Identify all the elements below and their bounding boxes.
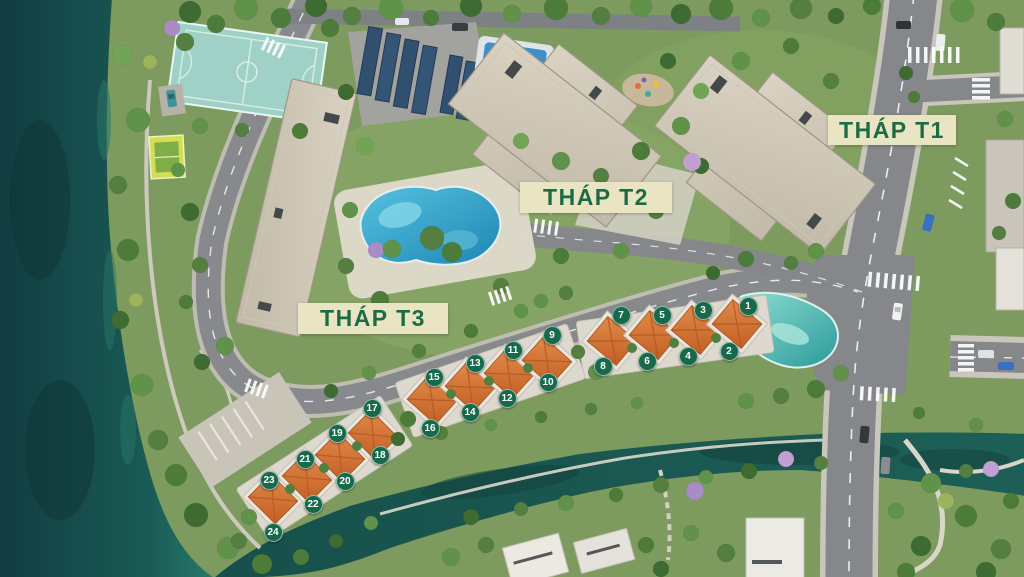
villa-marker-24: 24 xyxy=(264,523,283,542)
villa-marker-21: 21 xyxy=(296,450,315,469)
villa-marker-17: 17 xyxy=(363,399,382,418)
villa-marker-13: 13 xyxy=(466,354,485,373)
tower-label-t3: THÁP T3 xyxy=(298,303,448,334)
masterplan-render xyxy=(0,0,1024,577)
masterplan-image: THÁP T1THÁP T2THÁP T3 123456789101112131… xyxy=(0,0,1024,577)
villa-marker-9: 9 xyxy=(543,326,562,345)
villa-marker-12: 12 xyxy=(498,389,517,408)
villa-marker-14: 14 xyxy=(461,403,480,422)
villa-marker-2: 2 xyxy=(720,342,739,361)
tower-label-t2: THÁP T2 xyxy=(520,182,672,213)
villa-marker-5: 5 xyxy=(653,306,672,325)
villa-marker-22: 22 xyxy=(304,495,323,514)
villa-marker-3: 3 xyxy=(694,301,713,320)
villa-marker-6: 6 xyxy=(638,352,657,371)
villa-marker-1: 1 xyxy=(739,297,758,316)
villa-marker-23: 23 xyxy=(260,471,279,490)
villa-marker-4: 4 xyxy=(679,347,698,366)
villa-marker-11: 11 xyxy=(504,341,523,360)
villa-marker-19: 19 xyxy=(328,424,347,443)
villa-marker-20: 20 xyxy=(336,472,355,491)
villa-marker-7: 7 xyxy=(612,306,631,325)
villa-marker-15: 15 xyxy=(425,368,444,387)
villa-marker-10: 10 xyxy=(539,373,558,392)
tower-label-t1: THÁP T1 xyxy=(828,115,956,145)
villa-marker-16: 16 xyxy=(421,419,440,438)
villa-marker-8: 8 xyxy=(594,357,613,376)
villa-marker-18: 18 xyxy=(371,446,390,465)
